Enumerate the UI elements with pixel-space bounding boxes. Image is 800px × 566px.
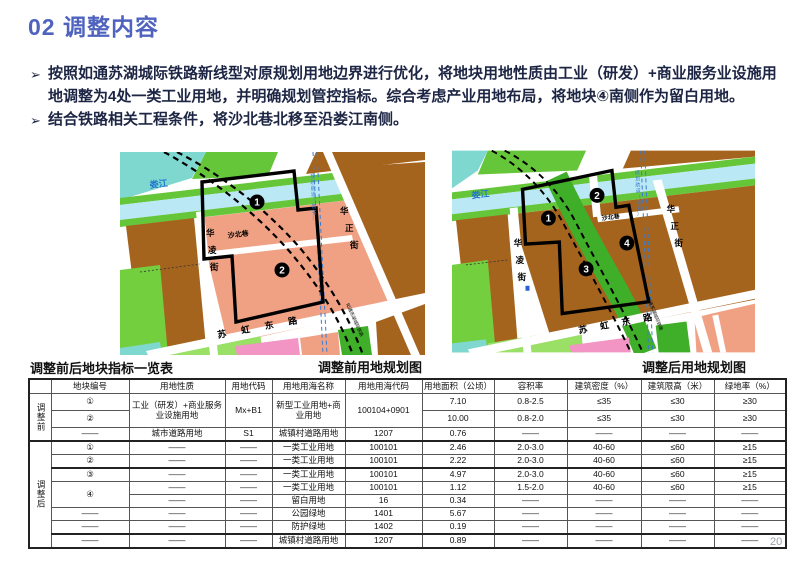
table-row: 调整前 ① 工业（研发）+商业服务业设施用地 Mx+B1 新型工业用地+商业用地… — [29, 394, 786, 411]
cell: 留白用地 — [272, 495, 345, 508]
cell: 1.12 — [422, 482, 494, 495]
cell: —— — [51, 428, 129, 442]
river-label: 娄江 — [470, 188, 490, 201]
cell: 16 — [345, 495, 422, 508]
cell: 0.8-2.0 — [494, 411, 567, 428]
bullet-list: ➢ 按照如通苏湖城际铁路新线型对原规划用地边界进行优化，将地块用地性质由工业（研… — [30, 62, 778, 132]
cell: ③ — [51, 468, 129, 482]
cell: ① — [51, 394, 129, 411]
cell: 一类工业用地 — [272, 482, 345, 495]
river-label: 娄江 — [148, 177, 168, 190]
cell: 1.5-2.0 — [494, 482, 567, 495]
cell: ≤35 — [567, 411, 641, 428]
cell: —— — [225, 495, 272, 508]
cell: —— — [225, 455, 272, 469]
map-before-svg: 1 2 娄江 沙北巷 华凌街 华正街 苏虹东路 如通苏湖城际铁路 规划航道（暂名… — [120, 152, 425, 355]
cell: ≥30 — [714, 411, 786, 428]
cell: 0.19 — [422, 521, 494, 535]
cell: 2.0-3.0 — [494, 441, 567, 455]
cell: ≥30 — [714, 394, 786, 411]
cell: 40-60 — [567, 468, 641, 482]
bullet-item: ➢ 结合铁路相关工程条件，将沙北巷北移至沿娄江南侧。 — [30, 108, 778, 132]
cell: ≤60 — [641, 455, 714, 469]
cell: ≤60 — [641, 482, 714, 495]
table-row: —— —— 留白用地 16 0.34 —— —— —— —— — [29, 495, 786, 508]
table-row: —— —— —— 防护绿地 1402 0.19 —— —— —— —— — [29, 521, 786, 535]
cell: —— — [641, 508, 714, 521]
cell: —— — [51, 534, 129, 548]
plot-number: 1 — [254, 198, 260, 209]
cell: ≥15 — [714, 441, 786, 455]
cell: 0.76 — [422, 428, 494, 442]
group-label-before: 调整前 — [29, 394, 51, 442]
cell: 1401 — [345, 508, 422, 521]
cell: —— — [225, 482, 272, 495]
plot-number: 3 — [583, 264, 589, 275]
cell: ① — [51, 441, 129, 455]
cell: —— — [714, 521, 786, 535]
cell: —— — [494, 428, 567, 442]
cell: ≥15 — [714, 455, 786, 469]
cell: ④ — [51, 482, 129, 508]
cell: 2.46 — [422, 441, 494, 455]
table-row: ② —— —— 一类工业用地 100101 2.22 2.0-3.0 40-60… — [29, 455, 786, 469]
cell: 1207 — [345, 534, 422, 548]
cell: 0.34 — [422, 495, 494, 508]
cell: —— — [641, 495, 714, 508]
cell: —— — [225, 468, 272, 482]
cell: —— — [129, 521, 225, 535]
table-row: —— 城市道路用地 S1 城镇村道路用地 1207 0.76 —— —— —— … — [29, 428, 786, 442]
cell: —— — [567, 521, 641, 535]
plot-badge-4: 4 — [619, 236, 634, 251]
bullet-arrow-icon: ➢ — [30, 62, 48, 86]
corner-cell — [29, 379, 51, 394]
cell: —— — [129, 534, 225, 548]
header-cell: 容积率 — [494, 379, 567, 394]
header-cell: 用地面积（公顷） — [422, 379, 494, 394]
cell: 1402 — [345, 521, 422, 535]
header-cell: 用地代码 — [225, 379, 272, 394]
cell: 100104+0901 — [345, 394, 422, 428]
cell: 工业（研发）+商业服务业设施用地 — [129, 394, 225, 428]
cell: —— — [129, 508, 225, 521]
cell: 100101 — [345, 455, 422, 469]
cell: —— — [225, 534, 272, 548]
cell: 100101 — [345, 482, 422, 495]
cell: 40-60 — [567, 441, 641, 455]
table-row: —— —— —— 公园绿地 1401 5.67 —— —— —— —— — [29, 508, 786, 521]
cell: ≤30 — [641, 394, 714, 411]
cell: ≥15 — [714, 482, 786, 495]
header-cell: 建筑限高（米） — [641, 379, 714, 394]
cell: ≤60 — [641, 468, 714, 482]
indicator-table: 地块编号 用地性质 用地代码 用地用海名称 用地用海代码 用地面积（公顷） 容积… — [28, 378, 787, 549]
header-cell: 用地性质 — [129, 379, 225, 394]
cell: ≤35 — [567, 394, 641, 411]
cell: —— — [225, 441, 272, 455]
header-cell: 建筑密度（%） — [567, 379, 641, 394]
plot-badge-3: 3 — [579, 261, 594, 276]
table-header-row: 地块编号 用地性质 用地代码 用地用海名称 用地用海代码 用地面积（公顷） 容积… — [29, 379, 786, 394]
cell: —— — [225, 521, 272, 535]
cell: —— — [494, 521, 567, 535]
cell: —— — [129, 441, 225, 455]
table-row: ③ —— —— 一类工业用地 100101 4.97 2.0-3.0 40-60… — [29, 468, 786, 482]
cell: 2.0-3.0 — [494, 468, 567, 482]
cell: 一类工业用地 — [272, 441, 345, 455]
cell: —— — [567, 508, 641, 521]
map-before-adjustment: 1 2 娄江 沙北巷 华凌街 华正街 苏虹东路 如通苏湖城际铁路 规划航道（暂名… — [120, 152, 425, 355]
map-before-caption: 调整前用地规划图 — [318, 357, 422, 376]
header-cell: 用地用海名称 — [272, 379, 345, 394]
cell: ≥15 — [714, 468, 786, 482]
cell: Mx+B1 — [225, 394, 272, 428]
cell: —— — [129, 468, 225, 482]
plot-badge-1: 1 — [541, 211, 556, 226]
bullet-item: ➢ 按照如通苏湖城际铁路新线型对原规划用地边界进行优化，将地块用地性质由工业（研… — [30, 62, 778, 108]
cell: 5.67 — [422, 508, 494, 521]
cell: —— — [51, 508, 129, 521]
cell: —— — [714, 508, 786, 521]
cell: —— — [494, 508, 567, 521]
cell: 城镇村道路用地 — [272, 428, 345, 442]
plot-badge-1: 1 — [250, 195, 265, 210]
cell: 一类工业用地 — [272, 455, 345, 469]
header-cell: 绿地率（%） — [714, 379, 786, 394]
table-row: ④ —— —— 一类工业用地 100101 1.12 1.5-2.0 40-60… — [29, 482, 786, 495]
plot-number: 2 — [279, 266, 285, 277]
plot-number: 1 — [546, 214, 552, 225]
table-row: 调整后 ① —— —— 一类工业用地 100101 2.46 2.0-3.0 4… — [29, 441, 786, 455]
cell: 10.00 — [422, 411, 494, 428]
header-cell: 用地用海代码 — [345, 379, 422, 394]
header-cell: 地块编号 — [51, 379, 129, 394]
bullet-text: 按照如通苏湖城际铁路新线型对原规划用地边界进行优化，将地块用地性质由工业（研发）… — [48, 62, 778, 108]
cell: —— — [51, 521, 129, 535]
cell: —— — [129, 495, 225, 508]
bullet-text: 结合铁路相关工程条件，将沙北巷北移至沿娄江南侧。 — [48, 108, 778, 131]
cell: 0.89 — [422, 534, 494, 548]
bullet-arrow-icon: ➢ — [30, 108, 48, 132]
cell: ② — [51, 455, 129, 469]
cell: —— — [567, 534, 641, 548]
table-caption: 调整前后地块指标一览表 — [30, 358, 173, 377]
cell: —— — [494, 534, 567, 548]
cell: —— — [494, 495, 567, 508]
plot-badge-2: 2 — [590, 188, 605, 203]
cell: —— — [641, 521, 714, 535]
cell: —— — [714, 428, 786, 442]
cell: —— — [129, 455, 225, 469]
cell: 100101 — [345, 468, 422, 482]
cell: —— — [641, 534, 714, 548]
cell: 城市道路用地 — [129, 428, 225, 442]
cell: 100101 — [345, 441, 422, 455]
cell: 7.10 — [422, 394, 494, 411]
cell: 新型工业用地+商业用地 — [272, 394, 345, 428]
cell: 一类工业用地 — [272, 468, 345, 482]
cell: ≤60 — [641, 441, 714, 455]
plot-number: 4 — [624, 239, 630, 250]
slide: 02 调整内容 ➢ 按照如通苏湖城际铁路新线型对原规划用地边界进行优化，将地块用… — [0, 0, 800, 566]
cell: —— — [714, 495, 786, 508]
cell: ② — [51, 411, 129, 428]
cell: —— — [225, 508, 272, 521]
cell: 2.0-3.0 — [494, 455, 567, 469]
cell: —— — [567, 495, 641, 508]
cell: 40-60 — [567, 455, 641, 469]
plot-number: 2 — [594, 191, 600, 202]
cell: —— — [567, 428, 641, 442]
cell: ≤30 — [641, 411, 714, 428]
map-after-svg: 1 2 3 4 娄江 沙北巷 华凌街 华正街 苏虹东路 如通苏湖城际铁路 规划航… — [452, 150, 755, 353]
cell: —— — [129, 482, 225, 495]
cell: 公园绿地 — [272, 508, 345, 521]
map-after-adjustment: 1 2 3 4 娄江 沙北巷 华凌街 华正街 苏虹东路 如通苏湖城际铁路 规划航… — [452, 150, 755, 353]
cell: —— — [641, 428, 714, 442]
table-row: —— —— —— 城镇村道路用地 1207 0.89 —— —— —— —— — [29, 534, 786, 548]
cell: 2.22 — [422, 455, 494, 469]
cell: 城镇村道路用地 — [272, 534, 345, 548]
cell: 0.8-2.5 — [494, 394, 567, 411]
plot-badge-2: 2 — [275, 263, 290, 278]
cell: 4.97 — [422, 468, 494, 482]
group-label-after: 调整后 — [29, 441, 51, 548]
map-after-caption: 调整后用地规划图 — [642, 357, 746, 376]
cell: 1207 — [345, 428, 422, 442]
cell: 40-60 — [567, 482, 641, 495]
page-number: 20 — [770, 536, 782, 548]
page-title: 02 调整内容 — [28, 8, 159, 42]
cell: 防护绿地 — [272, 521, 345, 535]
cell: S1 — [225, 428, 272, 442]
